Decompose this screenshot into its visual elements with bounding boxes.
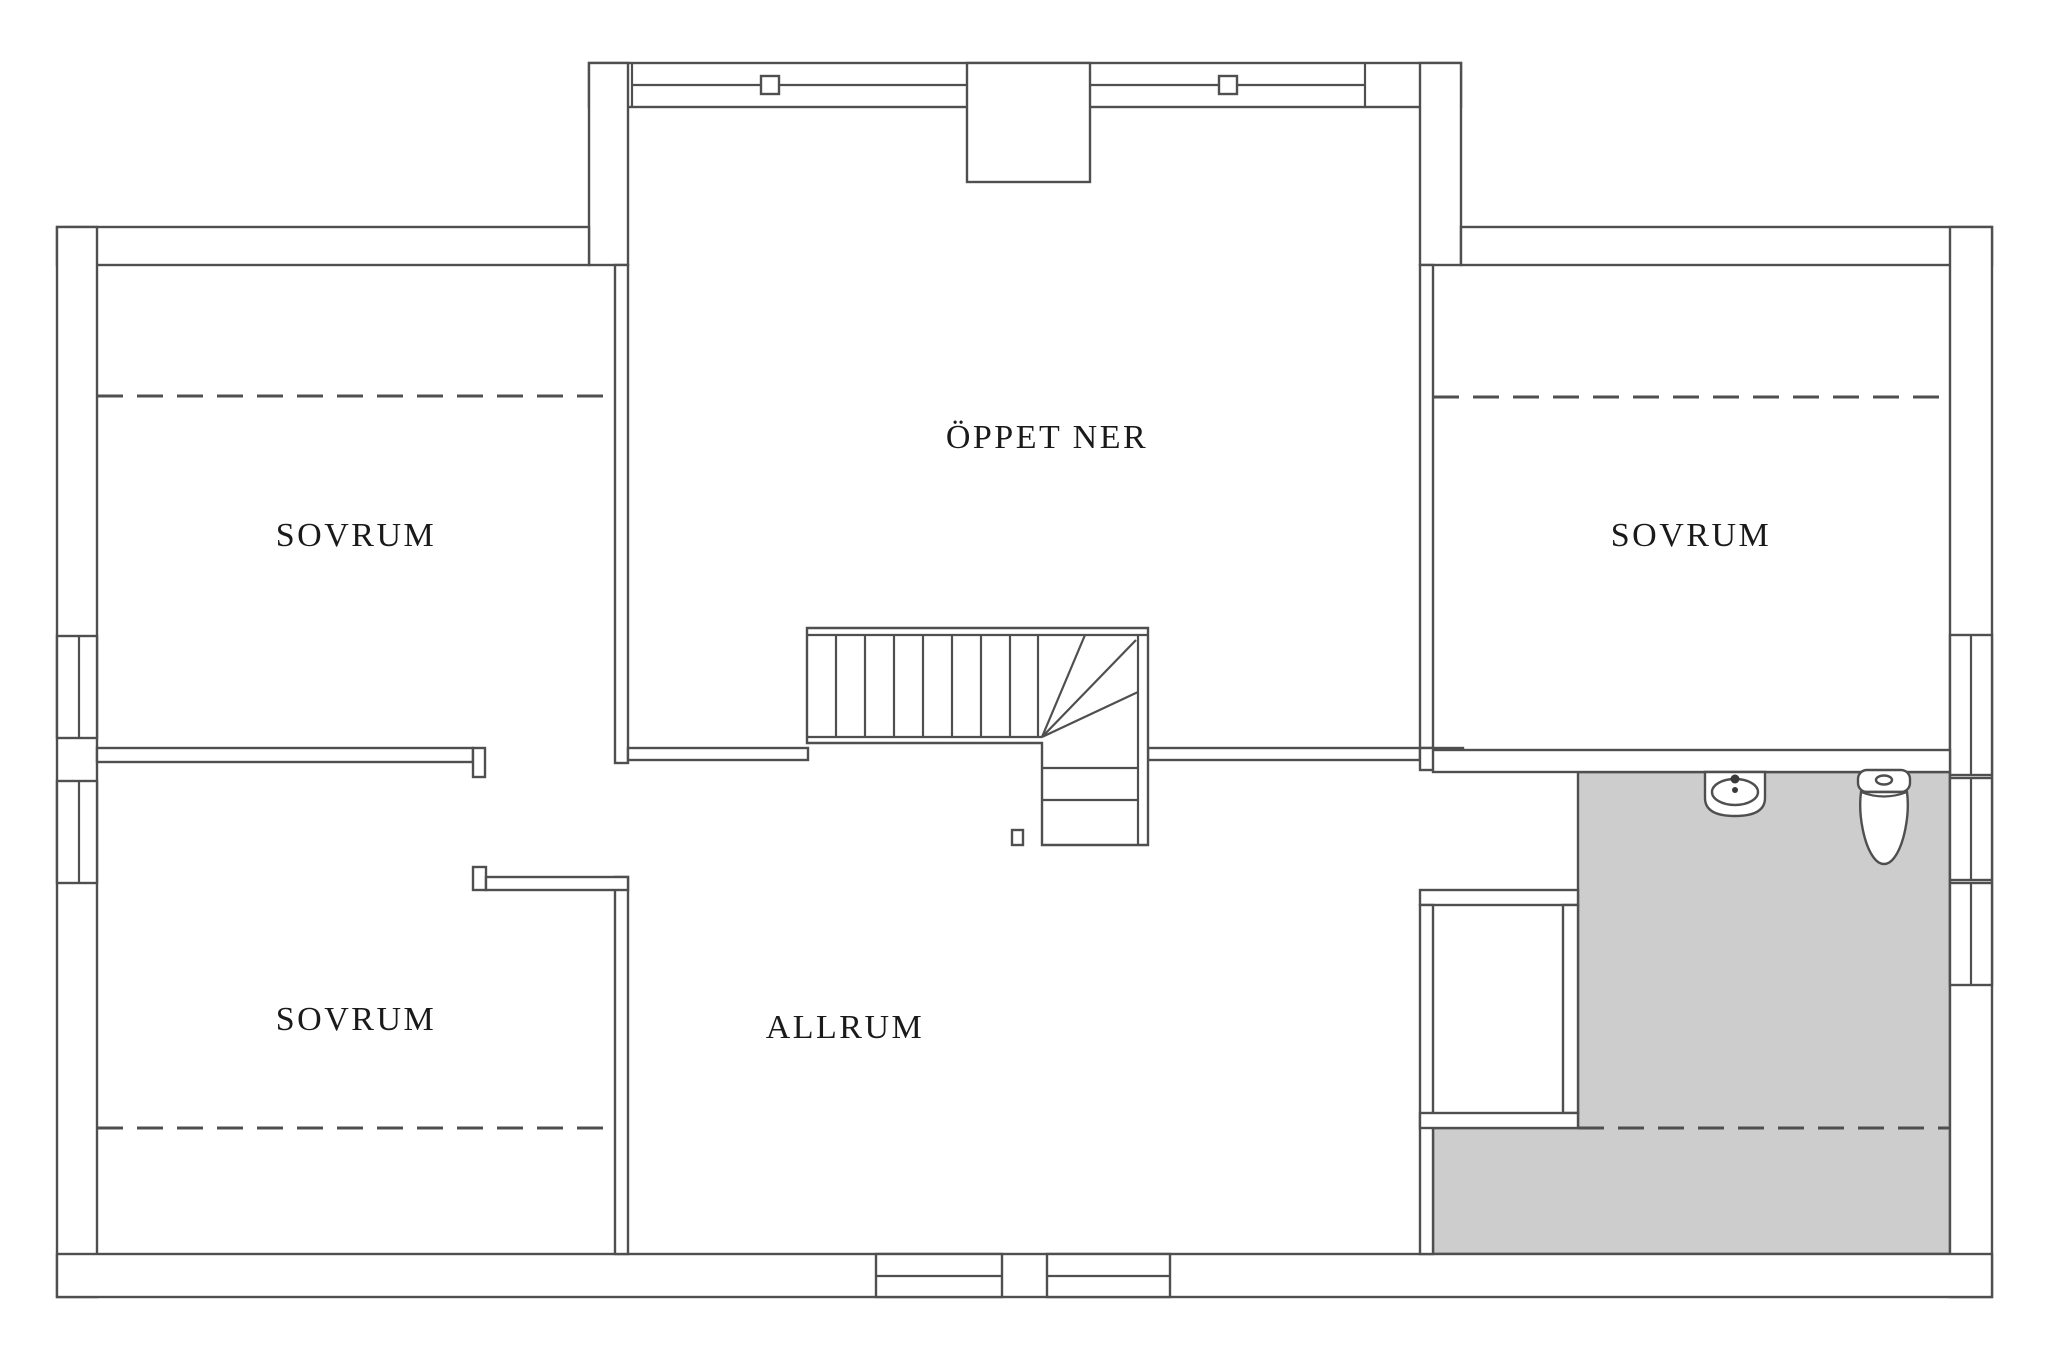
room-label-allrum: ALLRUM [766, 1009, 925, 1046]
wall-closet-bottom [1420, 1113, 1578, 1128]
railing-east [1148, 748, 1420, 760]
wall-allrum-bath [1420, 905, 1433, 1254]
wall-west [57, 227, 97, 1297]
wall-oppetner-west [615, 265, 628, 763]
east-wall-windows [1950, 635, 1992, 985]
railing-west [628, 748, 808, 760]
sink-faucet-spout [1732, 787, 1738, 793]
room-label-sovrum-bottom-left: SOVRUM [276, 1001, 436, 1038]
floor-plan-canvas: ÖPPET NER SOVRUM SOVRUM SOVRUM ALLRUM [0, 0, 2048, 1365]
window-mullion [1219, 76, 1237, 94]
sink-fixture [1705, 772, 1765, 816]
room-label-sovrum-top-left: SOVRUM [276, 517, 436, 554]
wall-closet-top [1420, 890, 1578, 905]
wall-oppetner-east [1420, 265, 1433, 748]
wall-center-west [589, 63, 628, 265]
room-label-sovrum-top-right: SOVRUM [1611, 517, 1771, 554]
wall-closet-east [1563, 905, 1578, 1113]
wall-between-left-sovrum [97, 748, 473, 762]
room-label-oppet-ner: ÖPPET NER [946, 419, 1148, 456]
wall-left-wing-top [57, 227, 589, 265]
wall-bottom [57, 1254, 1992, 1297]
sink-faucet [1731, 775, 1740, 784]
window [57, 636, 97, 738]
chimney [967, 63, 1090, 182]
wall-right-wing-top [1461, 227, 1992, 265]
wall-right-sovrum-bottom [1433, 750, 1950, 772]
floor-plan-page: ÖPPET NER SOVRUM SOVRUM SOVRUM ALLRUM [0, 0, 2048, 1365]
staircase [807, 628, 1148, 845]
toilet-flush-button [1876, 776, 1892, 785]
wall-tab [473, 867, 486, 890]
stair-newel-post [1012, 830, 1023, 845]
window-mullion [761, 76, 779, 94]
wall-bottom-left-sovrum-east [615, 877, 628, 1254]
wall-center-east [1420, 63, 1461, 265]
door-jamb [473, 748, 485, 777]
wall-bottom-left-sovrum-notch [486, 877, 628, 890]
window [57, 781, 97, 883]
